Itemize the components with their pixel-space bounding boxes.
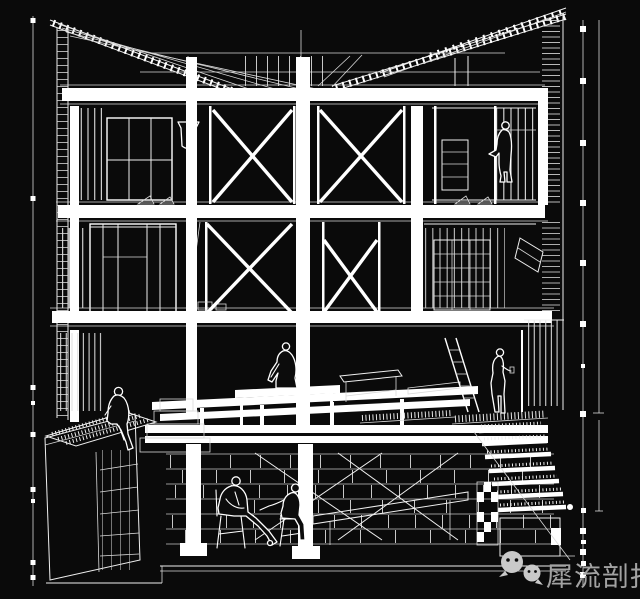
- figure-seated-knees: [268, 343, 297, 388]
- watermark-text: 犀流剖报: [546, 562, 640, 593]
- section-drawing: 犀流剖报: [0, 0, 640, 599]
- basement-table: [313, 492, 468, 545]
- watermark: 犀流剖报: [499, 551, 640, 593]
- dimension-scale-left: [31, 16, 36, 586]
- terrace-beam: [145, 425, 548, 443]
- wechat-bubble-large-icon: [499, 551, 523, 577]
- duct-chute: [515, 238, 543, 272]
- planter-box: [46, 412, 156, 446]
- wechat-bubble-small-icon: [524, 565, 544, 586]
- figure-planter-girl: [105, 387, 133, 450]
- dimension-scale-right: [580, 20, 604, 586]
- figure-seated-man-left: [216, 477, 277, 548]
- figure-standing-man: [489, 122, 512, 182]
- ground-lines: [46, 566, 566, 583]
- slat-screen-right: [521, 320, 564, 412]
- walkway-gravel: [360, 413, 548, 424]
- figure-stair-woman: [491, 349, 514, 413]
- screenshot-canvas: 犀流剖报: [0, 0, 640, 599]
- staircase: [474, 423, 575, 560]
